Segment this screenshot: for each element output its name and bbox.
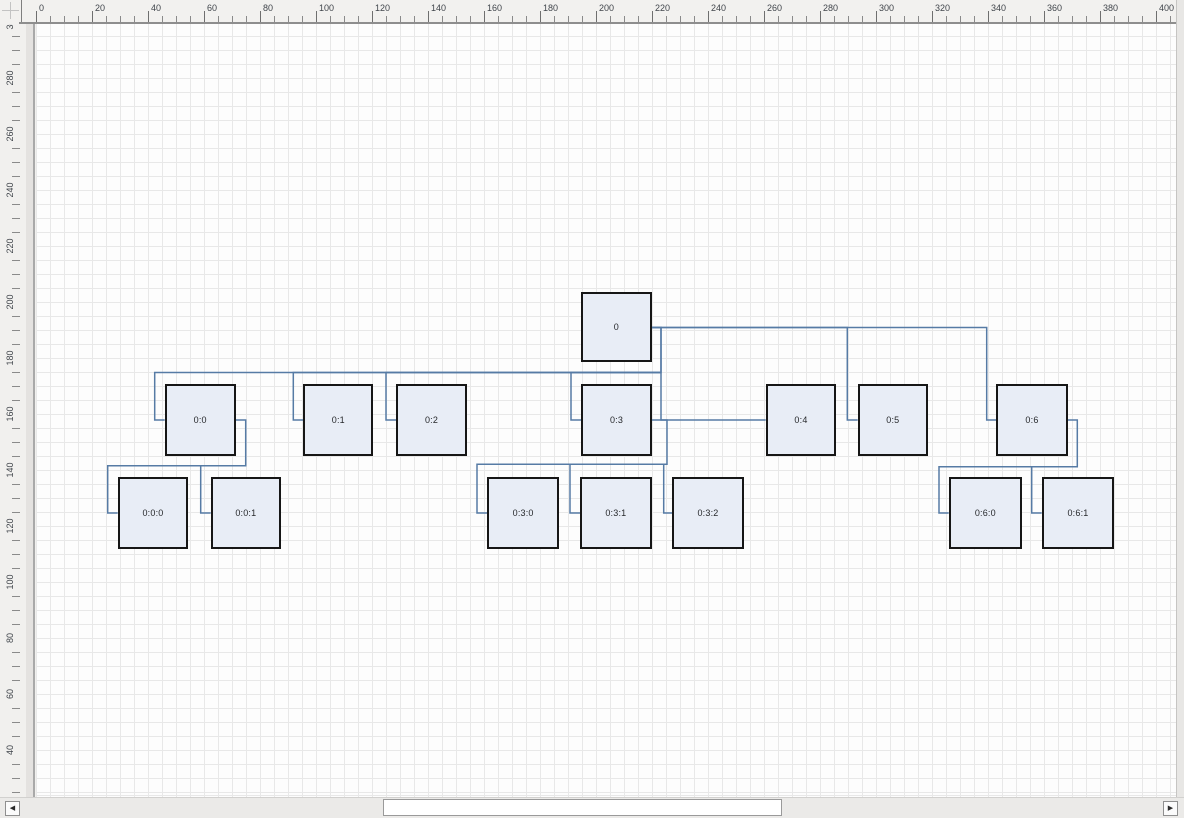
ruler-label: 300 — [1, 24, 19, 31]
ruler-major-tick — [764, 11, 765, 22]
node-label: 0:0 — [194, 415, 207, 425]
diagram-editor-window: { "rulers": { "unit_px": 2.8, "top": { "… — [0, 0, 1184, 818]
ruler-minor-tick — [12, 554, 20, 555]
diagram-node[interactable]: 0:6:0 — [949, 477, 1022, 548]
diagram-node[interactable]: 0:3:0 — [487, 477, 559, 548]
diagram-node[interactable]: 0:0:1 — [211, 477, 281, 548]
canvas-left-shade — [26, 24, 33, 797]
ruler-major-tick — [148, 11, 149, 22]
ruler-label: 160 — [487, 3, 502, 13]
arrow-right-icon: ▶ — [1168, 805, 1173, 812]
ruler-minor-tick — [12, 498, 20, 499]
ruler-major-tick — [540, 11, 541, 22]
ruler-minor-tick — [12, 120, 20, 121]
diagram-node[interactable]: 0:2 — [396, 384, 467, 456]
ruler-major-tick — [36, 11, 37, 22]
ruler-minor-tick — [12, 624, 20, 625]
ruler-minor-tick — [12, 736, 20, 737]
ruler-label: 20 — [95, 3, 105, 13]
ruler-minor-tick — [12, 288, 20, 289]
ruler-major-tick — [596, 11, 597, 22]
node-label: 0:1 — [332, 415, 345, 425]
ruler-minor-tick — [12, 344, 20, 345]
node-label: 0:6 — [1025, 415, 1038, 425]
ruler-label: 60 — [1, 685, 19, 703]
ruler-label: 280 — [1, 69, 19, 87]
ruler-minor-tick — [12, 260, 20, 261]
ruler-label: 320 — [935, 3, 950, 13]
ruler-label: 100 — [319, 3, 334, 13]
node-label: 0:3:0 — [513, 508, 534, 518]
ruler-label: 360 — [1047, 3, 1062, 13]
ruler-minor-tick — [12, 722, 20, 723]
ruler-major-tick — [484, 11, 485, 22]
horizontal-scrollbar[interactable]: ◀ ▶ — [0, 797, 1184, 818]
ruler-minor-tick — [12, 232, 20, 233]
diagram-node[interactable]: 0:6:1 — [1042, 477, 1115, 548]
ruler-minor-tick — [12, 218, 20, 219]
ruler-major-tick — [372, 11, 373, 22]
diagram-node[interactable]: 0:5 — [858, 384, 928, 456]
diagram-node[interactable]: 0:3:1 — [580, 477, 652, 548]
ruler-label: 40 — [151, 3, 161, 13]
horizontal-scrollbar-thumb[interactable] — [383, 799, 782, 816]
ruler-minor-tick — [12, 568, 20, 569]
node-label: 0:0:1 — [235, 508, 256, 518]
ruler-minor-tick — [12, 162, 20, 163]
ruler-label: 380 — [1103, 3, 1118, 13]
ruler-label: 300 — [879, 3, 894, 13]
ruler-minor-tick — [12, 792, 20, 793]
ruler-minor-tick — [12, 204, 20, 205]
ruler-minor-tick — [12, 484, 20, 485]
ruler-major-tick — [316, 11, 317, 22]
scroll-right-button[interactable]: ▶ — [1163, 801, 1178, 816]
diagram-node[interactable]: 0:6 — [996, 384, 1067, 456]
ruler-major-tick — [876, 11, 877, 22]
ruler-minor-tick — [12, 764, 20, 765]
ruler-label: 160 — [1, 405, 19, 423]
ruler-minor-tick — [12, 666, 20, 667]
diagram-node[interactable]: 0:0:0 — [118, 477, 189, 548]
scroll-left-button[interactable]: ◀ — [5, 801, 20, 816]
ruler-minor-tick — [12, 176, 20, 177]
ruler-major-tick — [652, 11, 653, 22]
vertical-ruler: 300280260240220200180160140120100806040 — [0, 24, 36, 797]
ruler-minor-tick — [12, 316, 20, 317]
edge-connector[interactable] — [664, 464, 673, 513]
ruler-major-tick — [260, 11, 261, 22]
ruler-label: 260 — [767, 3, 782, 13]
ruler-label: 80 — [263, 3, 273, 13]
ruler-label: 340 — [991, 3, 1006, 13]
diagram-node[interactable]: 0:1 — [303, 384, 373, 456]
ruler-corner — [0, 0, 22, 22]
ruler-label: 400 — [1159, 3, 1174, 13]
ruler-minor-tick — [12, 386, 20, 387]
diagram-node[interactable]: 0:3 — [581, 384, 652, 456]
ruler-minor-tick — [12, 442, 20, 443]
ruler-minor-tick — [12, 596, 20, 597]
ruler-major-tick — [1100, 11, 1101, 22]
ruler-minor-tick — [12, 428, 20, 429]
ruler-label: 80 — [1, 629, 19, 647]
diagram-canvas[interactable]: 00:00:10:20:30:40:50:60:0:00:0:10:3:00:3… — [36, 24, 1176, 797]
diagram-node[interactable]: 0:4 — [766, 384, 837, 456]
ruler-label: 220 — [1, 237, 19, 255]
crosshair-icon — [10, 2, 11, 19]
node-label: 0:6:0 — [975, 508, 996, 518]
canvas-left-border — [33, 24, 35, 797]
ruler-label: 0 — [39, 3, 44, 13]
ruler-label: 120 — [375, 3, 390, 13]
ruler-label: 180 — [1, 349, 19, 367]
ruler-label: 240 — [711, 3, 726, 13]
diagram-node[interactable]: 0 — [581, 292, 652, 362]
ruler-minor-tick — [12, 708, 20, 709]
node-label: 0:5 — [886, 415, 899, 425]
node-label: 0:4 — [794, 415, 807, 425]
ruler-label: 200 — [1, 293, 19, 311]
node-label: 0:2 — [425, 415, 438, 425]
ruler-label: 100 — [1, 573, 19, 591]
ruler-label: 60 — [207, 3, 217, 13]
ruler-label: 280 — [823, 3, 838, 13]
ruler-minor-tick — [12, 540, 20, 541]
ruler-minor-tick — [12, 148, 20, 149]
ruler-label: 40 — [1, 741, 19, 759]
ruler-label: 240 — [1, 181, 19, 199]
ruler-major-tick — [708, 11, 709, 22]
node-label: 0:3:1 — [605, 508, 626, 518]
ruler-label: 260 — [1, 125, 19, 143]
ruler-major-tick — [988, 11, 989, 22]
ruler-minor-tick — [12, 372, 20, 373]
horizontal-ruler: 0204060801001201401601802002202402602803… — [22, 0, 1176, 22]
ruler-label: 180 — [543, 3, 558, 13]
ruler-minor-tick — [12, 106, 20, 107]
node-label: 0:6:1 — [1067, 508, 1088, 518]
ruler-major-tick — [1156, 11, 1157, 22]
diagram-node[interactable]: 0:0 — [165, 384, 236, 456]
ruler-major-tick — [932, 11, 933, 22]
ruler-minor-tick — [12, 400, 20, 401]
window-right-edge — [1176, 0, 1184, 797]
node-label: 0 — [614, 322, 619, 332]
ruler-minor-tick — [12, 778, 20, 779]
ruler-minor-tick — [12, 512, 20, 513]
ruler-major-tick — [428, 11, 429, 22]
ruler-minor-tick — [12, 652, 20, 653]
diagram-node[interactable]: 0:3:2 — [672, 477, 743, 548]
node-label: 0:3:2 — [697, 508, 718, 518]
ruler-label: 140 — [1, 461, 19, 479]
ruler-major-tick — [204, 11, 205, 22]
ruler-minor-tick — [12, 680, 20, 681]
ruler-minor-tick — [12, 456, 20, 457]
ruler-label: 120 — [1, 517, 19, 535]
ruler-label: 200 — [599, 3, 614, 13]
ruler-minor-tick — [12, 50, 20, 51]
ruler-label: 140 — [431, 3, 446, 13]
edge-connector[interactable] — [652, 328, 766, 421]
arrow-left-icon: ◀ — [10, 805, 15, 812]
ruler-minor-tick — [12, 330, 20, 331]
ruler-minor-tick — [12, 274, 20, 275]
ruler-minor-tick — [12, 92, 20, 93]
ruler-major-tick — [1044, 11, 1045, 22]
ruler-major-tick — [820, 11, 821, 22]
node-label: 0:3 — [610, 415, 623, 425]
ruler-label: 220 — [655, 3, 670, 13]
ruler-minor-tick — [12, 64, 20, 65]
ruler-minor-tick — [12, 36, 20, 37]
node-label: 0:0:0 — [142, 508, 163, 518]
ruler-minor-tick — [12, 610, 20, 611]
ruler-major-tick — [92, 11, 93, 22]
